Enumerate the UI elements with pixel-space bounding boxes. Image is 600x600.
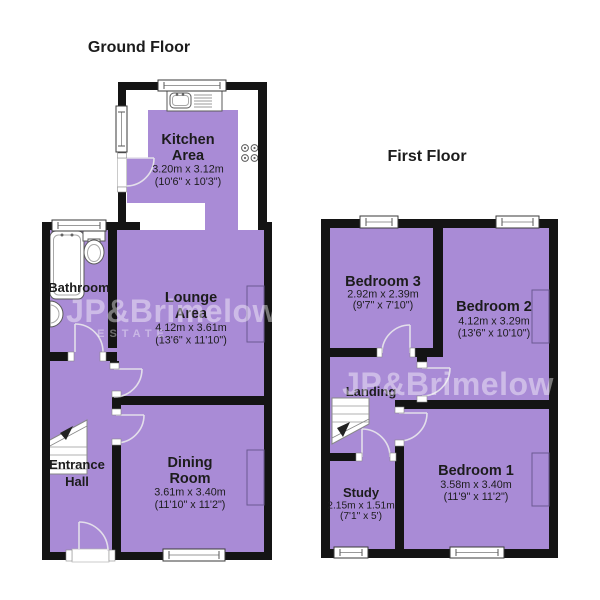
bedroom2-label: Bedroom 2 4.12m x 3.29m (13'6" x 10'10") [456, 299, 532, 340]
svg-text:(7'1" x 5'): (7'1" x 5') [340, 511, 382, 522]
svg-text:(9'7" x 7'10"): (9'7" x 7'10") [353, 300, 413, 312]
svg-text:Entrance: Entrance [49, 457, 105, 472]
svg-text:Hall: Hall [65, 474, 89, 489]
bedroom1-label: Bedroom 1 3.58m x 3.40m (11'9" x 11'2") [438, 463, 514, 503]
window-bedroom2-top [496, 216, 539, 228]
first-floor-plan: First Floor [321, 148, 558, 558]
svg-text:Dining: Dining [167, 455, 212, 471]
window-study-bottom [334, 547, 368, 558]
svg-text:(10'6" x 10'3"): (10'6" x 10'3") [155, 176, 221, 188]
window-bathroom-top [52, 220, 106, 231]
svg-text:Kitchen: Kitchen [161, 132, 214, 148]
toilet [83, 231, 105, 264]
window-bedroom3-top [360, 216, 398, 228]
svg-text:(11'9" x 11'2"): (11'9" x 11'2") [444, 491, 509, 503]
first-floor-title: First Floor [387, 148, 466, 165]
svg-text:3.61m x 3.40m: 3.61m x 3.40m [154, 487, 225, 499]
svg-text:3.20m x 3.12m: 3.20m x 3.12m [152, 164, 223, 176]
svg-text:ESTATE: ESTATE [97, 328, 169, 340]
window-bedroom1-bottom [450, 547, 504, 558]
window-dining-bottom [163, 549, 225, 561]
svg-text:(13'6" x 10'10"): (13'6" x 10'10") [458, 328, 530, 340]
bedroom3-label: Bedroom 3 2.92m x 2.39m (9'7" x 7'10") [345, 274, 421, 312]
svg-text:Bedroom 2: Bedroom 2 [456, 299, 532, 315]
floorplan-canvas: Ground Floor [0, 0, 600, 600]
window-kitchen-top [158, 80, 226, 91]
svg-text:4.12m x 3.29m: 4.12m x 3.29m [458, 316, 529, 328]
window-kitchen-left [116, 106, 127, 152]
svg-text:Area: Area [172, 148, 205, 164]
kitchen-sink-unit [167, 90, 222, 111]
svg-text:Room: Room [169, 471, 210, 487]
svg-text:JP&Brimelow: JP&Brimelow [66, 293, 278, 329]
svg-text:Bedroom 1: Bedroom 1 [438, 463, 514, 479]
ground-floor-plan: Ground Floor [42, 39, 278, 562]
svg-text:Study: Study [343, 485, 380, 500]
first-watermark: JP&Brimelow [342, 366, 554, 402]
svg-text:2.15m x 1.51m: 2.15m x 1.51m [327, 501, 394, 512]
svg-text:(11'10" x 11'2"): (11'10" x 11'2") [155, 499, 226, 511]
ground-floor-title: Ground Floor [88, 39, 190, 56]
svg-text:3.58m x 3.40m: 3.58m x 3.40m [440, 479, 511, 491]
